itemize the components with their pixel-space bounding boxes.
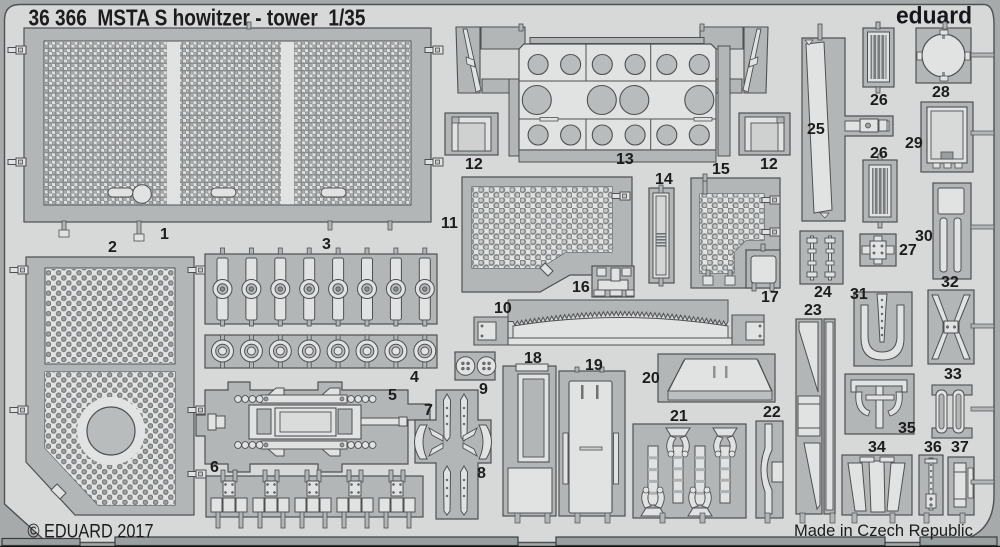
svg-text:12: 12 [760, 156, 778, 173]
svg-text:30: 30 [915, 228, 933, 245]
svg-text:31: 31 [850, 286, 868, 303]
svg-text:eduard: eduard [896, 3, 972, 30]
svg-text:26: 26 [870, 145, 888, 162]
svg-text:24: 24 [814, 284, 832, 301]
svg-text:8: 8 [477, 465, 486, 482]
svg-text:29: 29 [905, 135, 923, 152]
svg-text:19: 19 [585, 357, 603, 374]
svg-text:26: 26 [870, 92, 888, 109]
svg-text:3: 3 [322, 236, 331, 253]
svg-text:23: 23 [804, 302, 822, 319]
svg-text:12: 12 [465, 156, 483, 173]
svg-text:5: 5 [388, 387, 397, 404]
svg-text:36 366 MSTA S howitzer - towe: 36 366 MSTA S howitzer - tower 1/35 [29, 5, 366, 31]
svg-text:13: 13 [616, 151, 634, 168]
svg-text:18: 18 [524, 350, 542, 367]
svg-text:37: 37 [951, 439, 969, 456]
svg-text:20: 20 [642, 370, 660, 387]
svg-text:14: 14 [655, 171, 673, 188]
svg-text:34: 34 [868, 439, 886, 456]
svg-text:9: 9 [479, 381, 488, 398]
svg-text:35: 35 [898, 420, 916, 437]
svg-text:28: 28 [932, 84, 950, 101]
svg-text:6: 6 [210, 459, 219, 476]
svg-text:1: 1 [160, 226, 169, 243]
svg-text:17: 17 [761, 289, 779, 306]
svg-text:10: 10 [494, 300, 512, 317]
svg-text:15: 15 [712, 161, 730, 178]
svg-text:32: 32 [941, 274, 959, 291]
svg-text:25: 25 [807, 121, 825, 138]
svg-text:22: 22 [763, 404, 781, 421]
svg-text:16: 16 [572, 279, 590, 296]
svg-text:33: 33 [944, 366, 962, 383]
svg-text:21: 21 [670, 408, 688, 425]
svg-text:© EDUARD 2017: © EDUARD 2017 [28, 521, 154, 543]
svg-text:4: 4 [410, 369, 419, 386]
svg-text:Made in Czech Republic: Made in Czech Republic [794, 522, 973, 540]
svg-text:36: 36 [924, 439, 942, 456]
svg-text:2: 2 [108, 239, 117, 256]
svg-text:7: 7 [424, 402, 433, 419]
svg-text:11: 11 [441, 215, 458, 232]
